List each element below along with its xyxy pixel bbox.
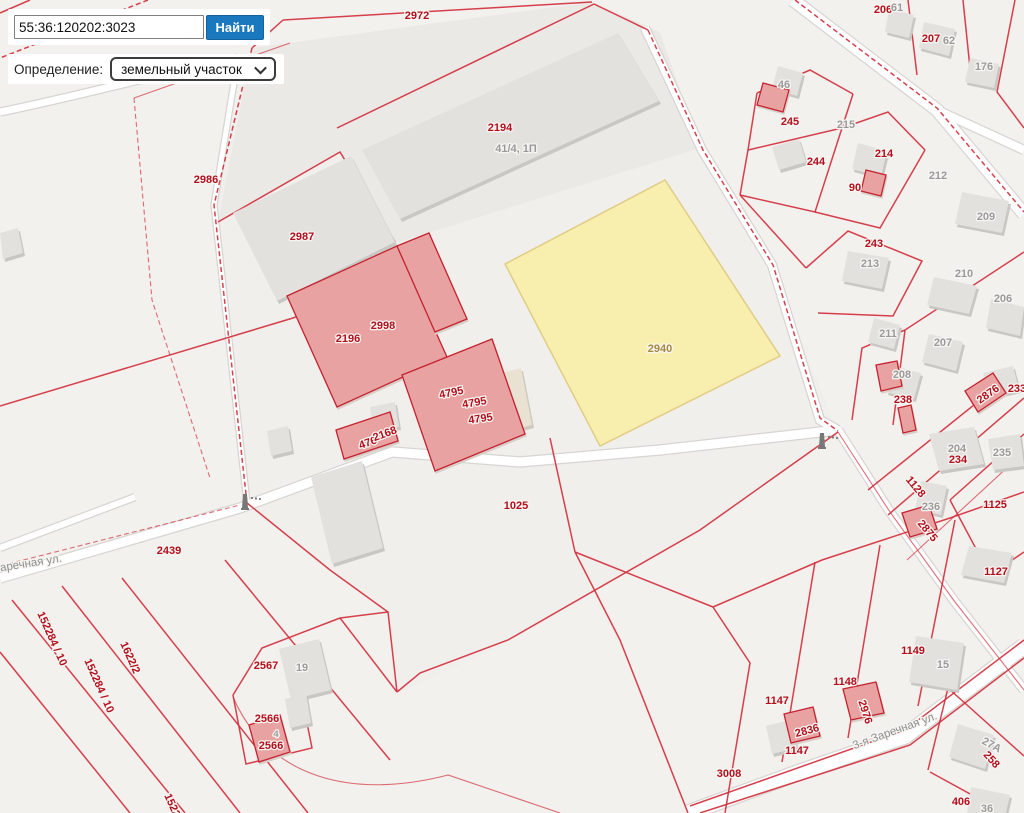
parcel-label-90[interactable]: 90: [849, 182, 861, 194]
parcel-label-235[interactable]: 235: [993, 447, 1011, 459]
parcel-label-1147[interactable]: 1147: [785, 745, 809, 757]
parcel-label-152284 / 10[interactable]: 152284 / 10: [161, 792, 196, 813]
parcel-label-176[interactable]: 176: [975, 61, 993, 73]
parcel-label-2567[interactable]: 2567: [254, 660, 278, 672]
parcel-label-2986[interactable]: 2986: [194, 174, 218, 186]
parcel-label-15[interactable]: 15: [937, 659, 949, 671]
parcel-label-41/4, 1П[interactable]: 41/4, 1П: [495, 143, 537, 155]
parcel-label-212[interactable]: 212: [929, 170, 947, 182]
chevron-down-icon: [254, 61, 267, 74]
parcel-label-2194[interactable]: 2194: [488, 122, 513, 134]
parcel-label-1125[interactable]: 1125: [983, 499, 1007, 511]
parcel-label-215[interactable]: 215: [837, 119, 855, 131]
parcel-label-406[interactable]: 406: [952, 796, 970, 808]
filter-selected-option: земельный участок: [121, 62, 242, 77]
parcel-label-2998[interactable]: 2998: [371, 320, 395, 332]
parcel-label-2972[interactable]: 2972: [405, 10, 429, 22]
parcel-label-207[interactable]: 207: [934, 337, 952, 349]
parcel-label-2940[interactable]: 2940: [648, 343, 672, 355]
parcel-label-1025[interactable]: 1025: [504, 500, 528, 512]
parcel-label-46[interactable]: 46: [778, 79, 790, 91]
parcel-label-36[interactable]: 36: [981, 803, 993, 813]
parcel-label-62[interactable]: 62: [943, 35, 955, 47]
parcel-label-4[interactable]: 4: [273, 729, 279, 740]
parcel-label-244[interactable]: 244: [807, 156, 826, 168]
parcel-label-1147[interactable]: 1147: [765, 695, 789, 707]
parcel-label-2439[interactable]: 2439: [157, 545, 181, 557]
parcel-label-206[interactable]: 206: [874, 4, 892, 16]
search-input[interactable]: [14, 15, 204, 39]
map-canvas[interactable]: 2972219441/4, 1П298629872998219647954795…: [0, 0, 1024, 813]
cadastral-map-app: 2972219441/4, 1П298629872998219647954795…: [0, 0, 1024, 813]
parcel-label-236[interactable]: 236: [922, 501, 940, 513]
parcel-label-61[interactable]: 61: [891, 2, 903, 14]
parcel-label-1127[interactable]: 1127: [984, 566, 1008, 578]
parcel-label-210[interactable]: 210: [955, 268, 973, 280]
parcel-label-2566[interactable]: 2566: [255, 713, 279, 725]
parcel-label-3008[interactable]: 3008: [717, 768, 741, 780]
parcel-label-19[interactable]: 19: [296, 662, 308, 674]
parcel-label-208[interactable]: 208: [893, 369, 911, 381]
filter-label: Определение:: [14, 62, 103, 77]
parcel-label-209[interactable]: 209: [977, 211, 995, 223]
parcel-label-245[interactable]: 245: [781, 116, 799, 128]
parcel-label-2196[interactable]: 2196: [336, 333, 360, 345]
parcel-label-233[interactable]: 233: [1008, 383, 1024, 395]
parcel-label-213[interactable]: 213: [861, 258, 879, 270]
parcel-label-1148[interactable]: 1148: [833, 676, 857, 688]
parcel-label-152284 / 10[interactable]: 152284 / 10: [34, 610, 69, 668]
parcel-label-238[interactable]: 238: [894, 394, 912, 406]
search-panel: Найти: [8, 9, 270, 45]
parcel-label-207[interactable]: 207: [922, 33, 940, 45]
parcel-label-234[interactable]: 234: [949, 454, 968, 466]
parcel-label-211[interactable]: 211: [879, 328, 897, 340]
filter-select[interactable]: земельный участок: [110, 57, 276, 81]
parcel-label-1149[interactable]: 1149: [901, 645, 925, 657]
parcel-label-2987[interactable]: 2987: [290, 231, 314, 243]
parcel-label-243[interactable]: 243: [865, 238, 883, 250]
search-button[interactable]: Найти: [206, 15, 264, 40]
parcel-label-2566[interactable]: 2566: [259, 740, 283, 752]
parcel-label-1622/2[interactable]: 1622/2: [117, 640, 142, 676]
filter-panel: Определение: земельный участок: [8, 54, 284, 84]
parcel-label-214[interactable]: 214: [875, 148, 894, 160]
parcel-label-206[interactable]: 206: [994, 293, 1012, 305]
